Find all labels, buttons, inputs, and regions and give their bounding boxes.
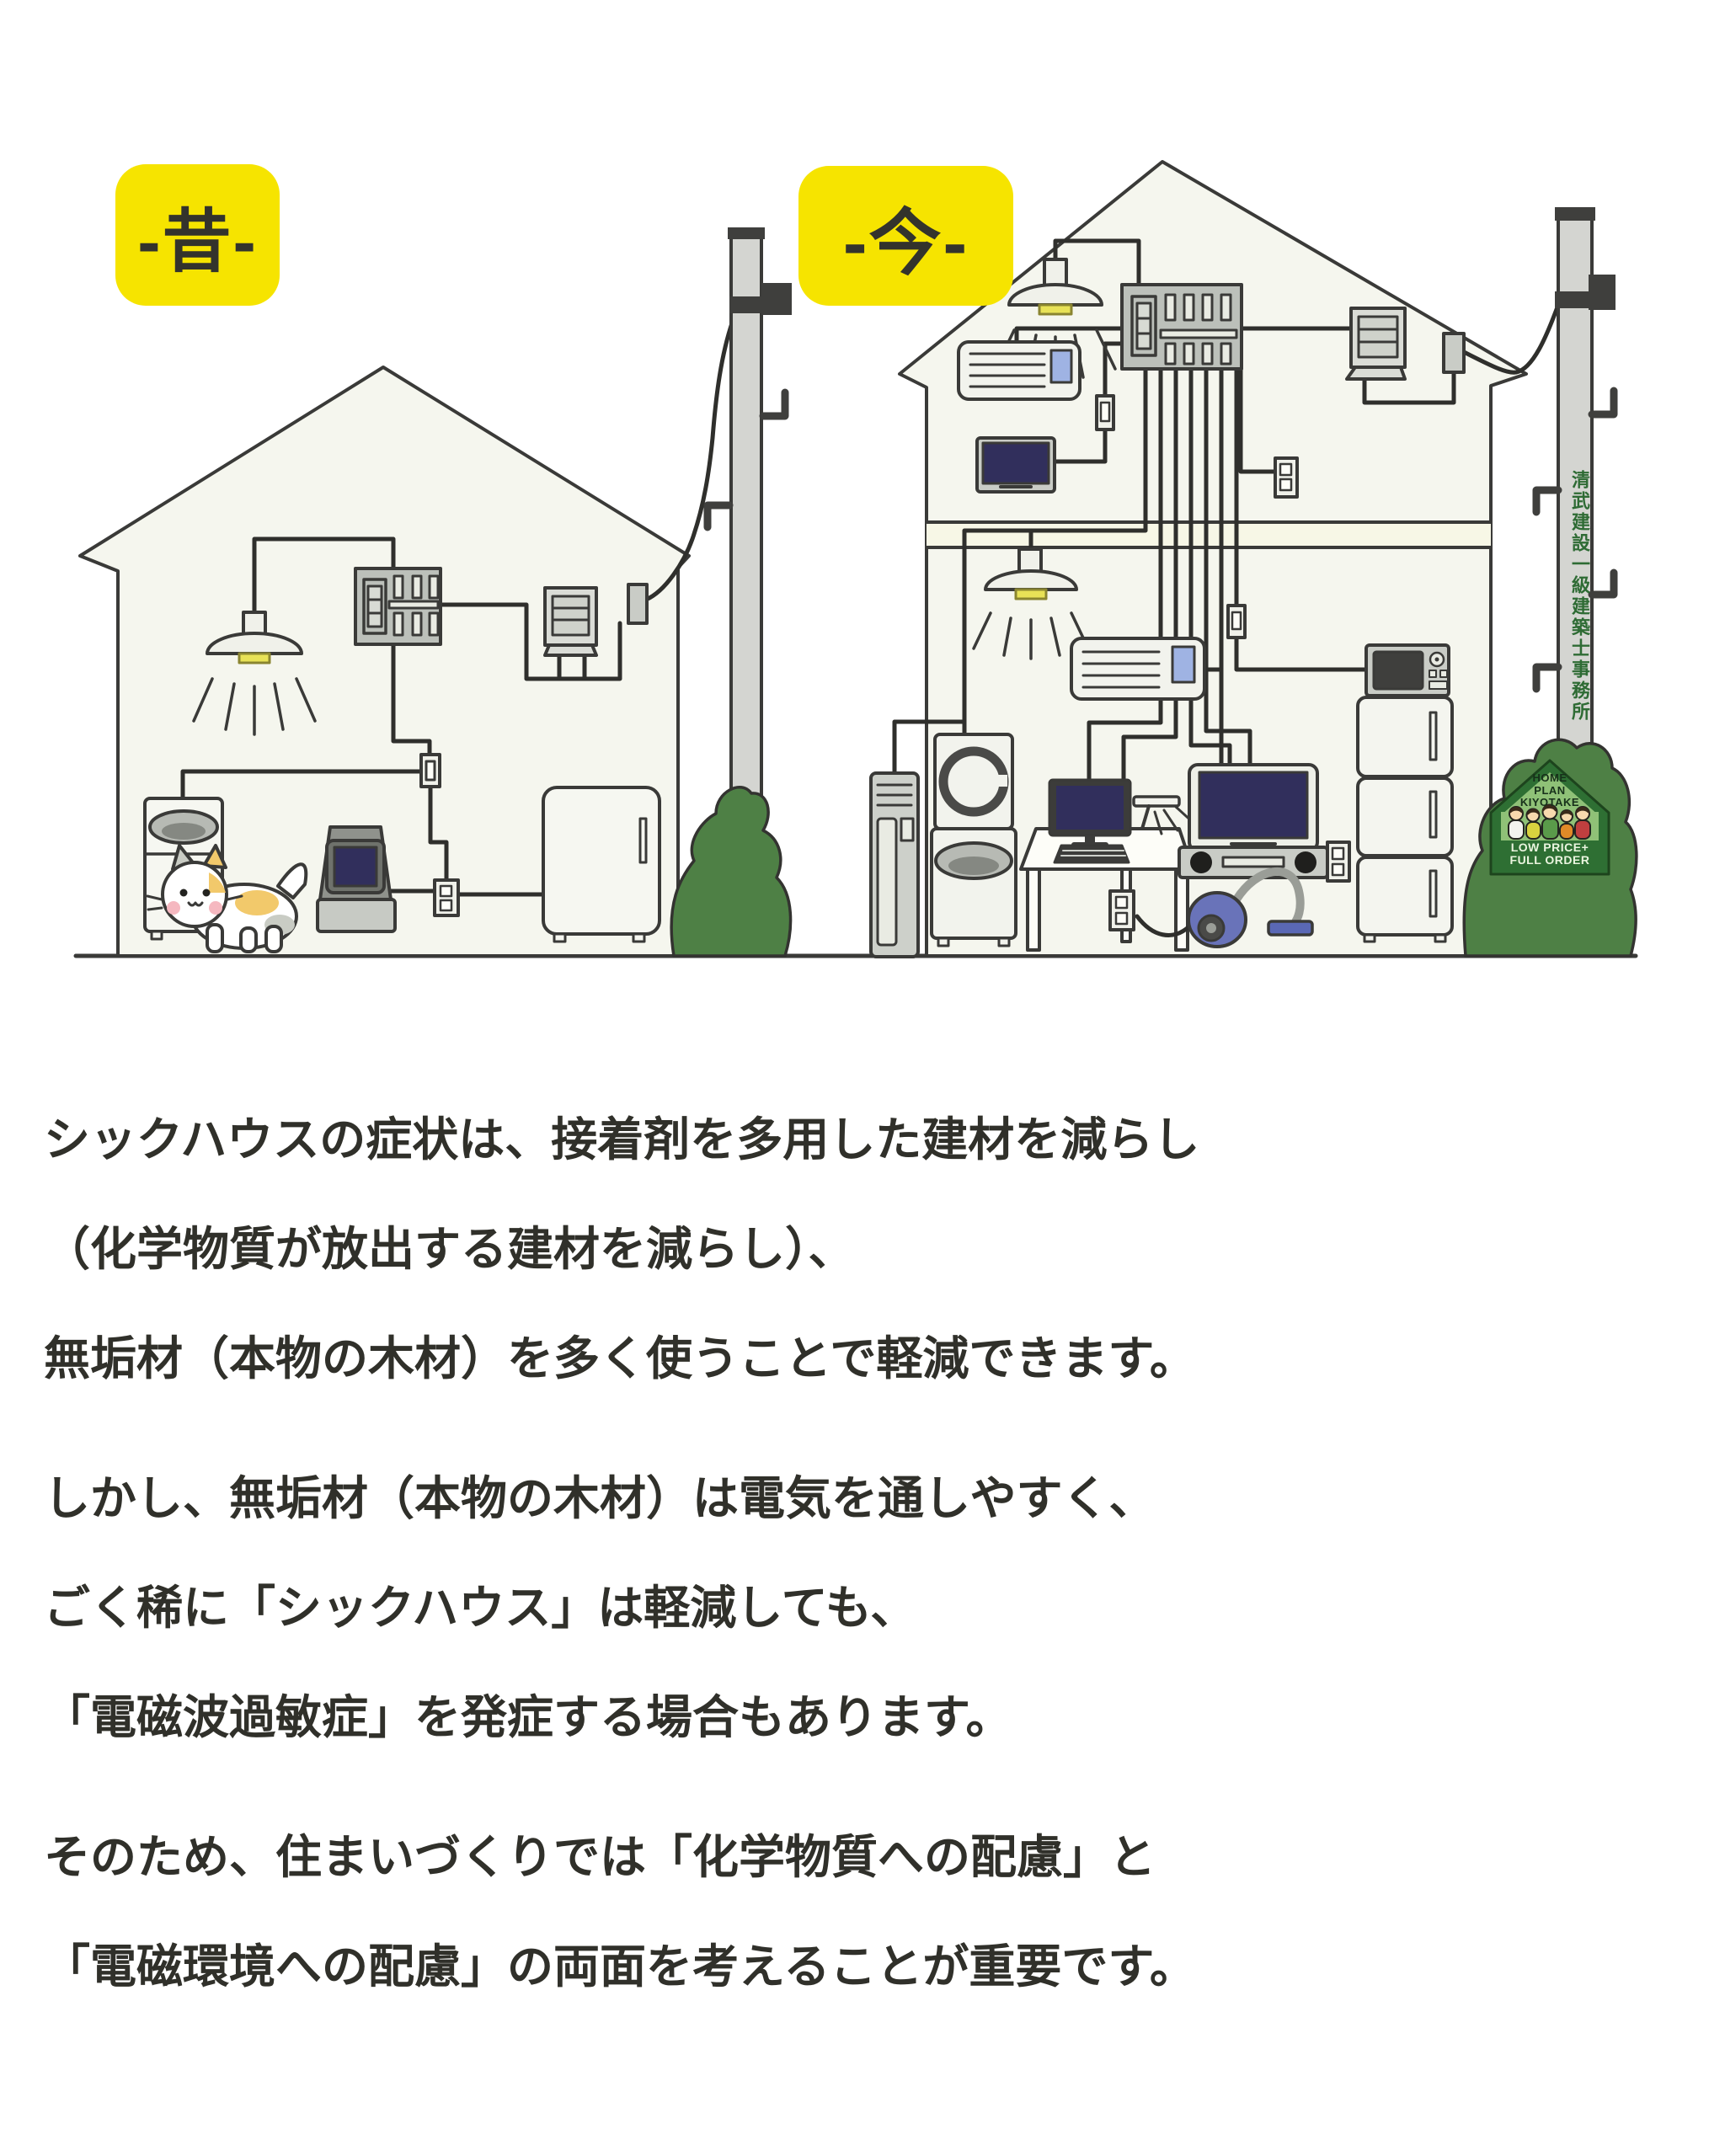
junction-box-past — [628, 584, 647, 623]
sign-line-fullorder: FULL ORDER — [1489, 854, 1610, 867]
paragraph-3: そのため、住まいづくりでは「化学物質への配慮」と 「電磁環境への配慮」の両面を考… — [44, 1802, 1703, 2021]
keyboard — [1055, 846, 1129, 862]
utility-pole-company-sign: 清武建設一級建築士事務所 — [1557, 462, 1593, 731]
wall-switch-2f — [1097, 396, 1114, 430]
label-now: -今- — [798, 166, 1013, 306]
sign-line-home: HOME — [1491, 772, 1609, 785]
distribution-board-now — [1122, 285, 1242, 369]
text-line: 「電磁波過敏症」を発症する場合もあります。 — [44, 1662, 1703, 1772]
water-heater-unit — [871, 773, 918, 957]
text-line: しかし、無垢材（本物の木材）は電気を通しやすく、 — [44, 1444, 1703, 1553]
kiyotake-sign-title: HOME PLAN KIYOTAKE — [1491, 772, 1609, 809]
paragraph-1: シックハウスの症状は、接着剤を多用した建材を減らし （化学物質が放出する建材を減… — [44, 1085, 1703, 1413]
wall-outlet-2f — [1275, 458, 1297, 497]
family-illustration — [1509, 805, 1590, 840]
body-text: シックハウスの症状は、接着剤を多用した建材を減らし （化学物質が放出する建材を減… — [44, 1085, 1703, 2052]
wall-outlet-fridge — [1327, 842, 1349, 881]
text-line: そのため、住まいづくりでは「化学物質への配慮」と — [44, 1802, 1703, 1912]
infographic-page: -昔- -今- 清武建設一級建築士事務所 HOME PLAN KIYOTAKE … — [0, 0, 1725, 2156]
text-line: 無垢材（本物の木材）を多く使うことで軽減できます。 — [44, 1304, 1703, 1413]
refrigerator-past — [543, 787, 660, 942]
houses-illustration — [0, 0, 1725, 1053]
air-conditioner-1f — [1071, 638, 1204, 699]
text-line: （化学物質が放出する建材を減らし）、 — [44, 1194, 1703, 1304]
wall-outlet-past — [435, 880, 458, 915]
electric-meter-now — [1347, 308, 1405, 379]
junction-box-now — [1444, 334, 1464, 372]
distribution-board-past — [355, 568, 441, 644]
house-past — [80, 318, 734, 956]
wall-switch-past — [421, 755, 440, 787]
label-past: -昔- — [115, 164, 280, 306]
av-rack — [1179, 847, 1327, 878]
electric-meter-past — [545, 588, 596, 655]
sign-line-kiyotake: KIYOTAKE — [1491, 797, 1609, 809]
crt-tv-past — [318, 827, 395, 931]
paragraph-2: しかし、無垢材（本物の木材）は電気を通しやすく、 ごく稀に「シックハウス」は軽減… — [44, 1444, 1703, 1772]
kiyotake-sign-slogan: LOW PRICE+ FULL ORDER — [1489, 841, 1610, 867]
text-line: 「電磁環境への配慮」の両面を考えることが重要です。 — [44, 1912, 1703, 2021]
text-line: ごく稀に「シックハウス」は軽減しても、 — [44, 1553, 1703, 1662]
flat-tv-2f — [977, 438, 1055, 492]
wall-outlet-desk — [1110, 891, 1134, 930]
air-conditioner-2f — [959, 342, 1080, 399]
sign-line-plan: PLAN — [1491, 785, 1609, 798]
bush-left — [671, 787, 790, 956]
text-line: シックハウスの症状は、接着剤を多用した建材を減らし — [44, 1085, 1703, 1194]
fridge-stack — [1358, 697, 1452, 942]
microwave — [1366, 645, 1449, 696]
wall-switch-1f — [1228, 606, 1245, 638]
flat-tv-1f — [1189, 765, 1317, 851]
washer-dryer — [932, 734, 1016, 946]
sign-line-lowprice: LOW PRICE+ — [1489, 841, 1610, 854]
